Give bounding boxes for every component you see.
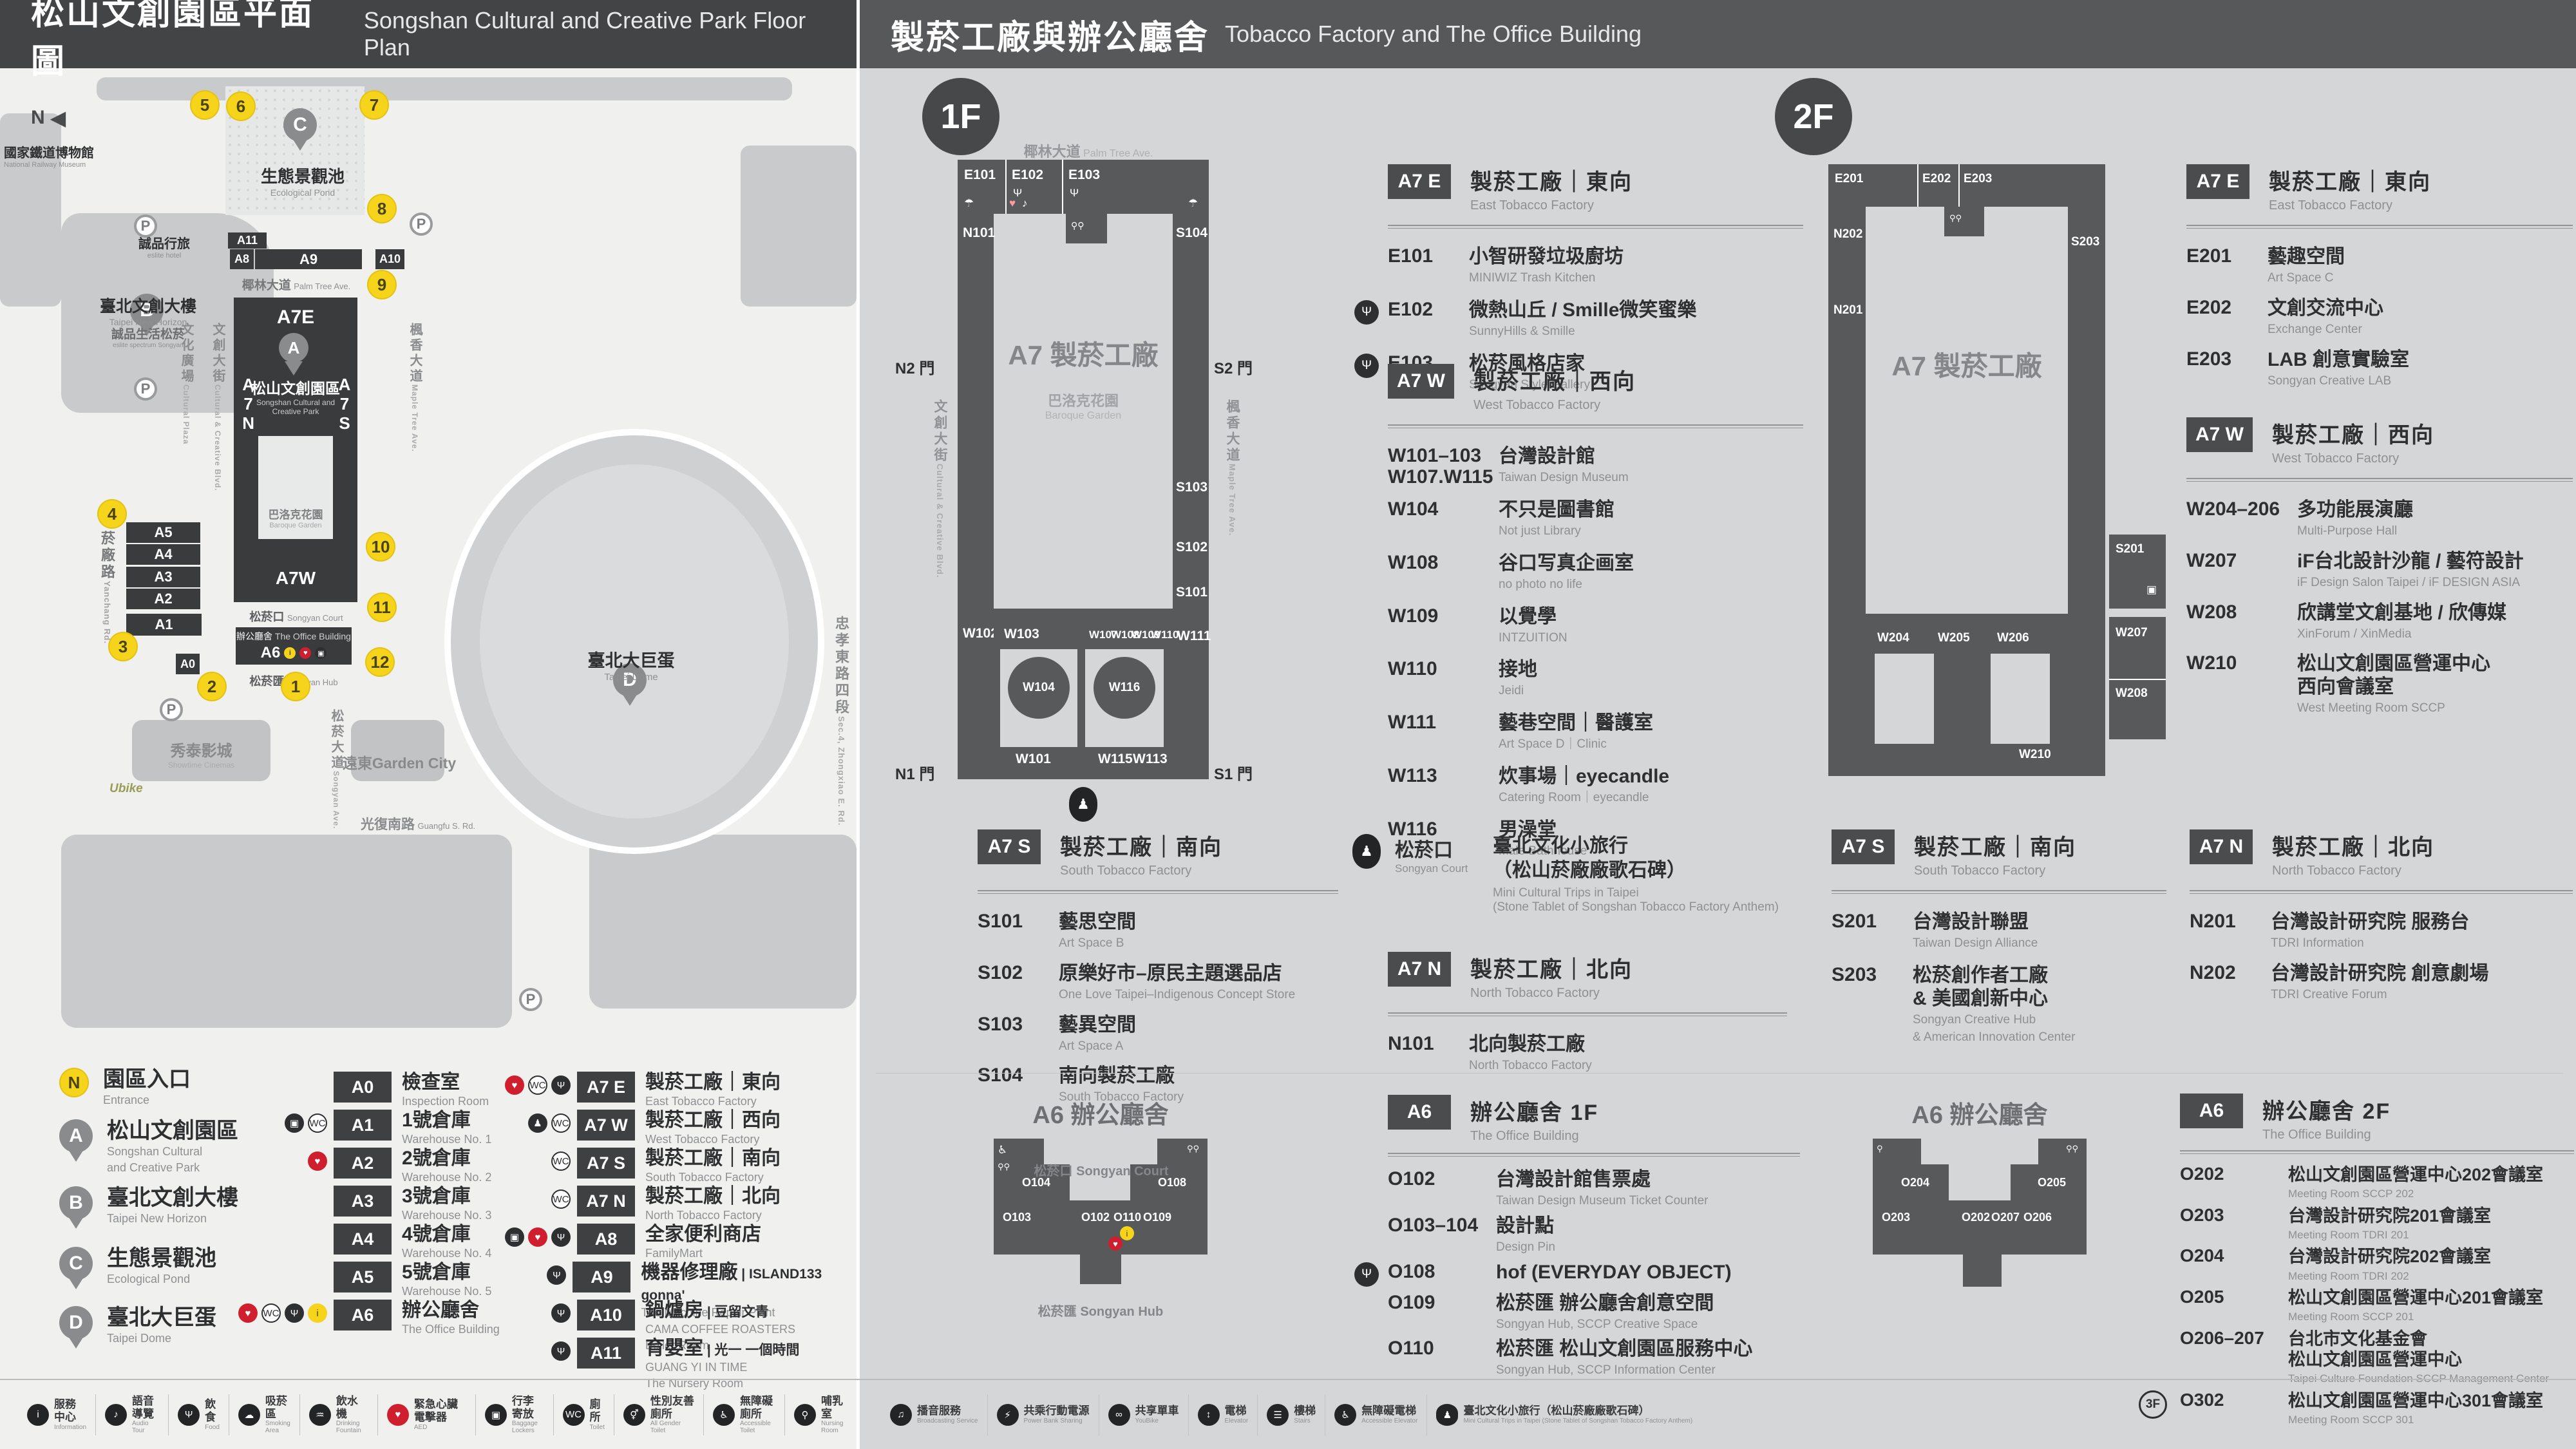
restaurant-icon: Ψ <box>551 1227 571 1247</box>
room-e201: E201 <box>1835 172 1863 186</box>
section-badge: A6 <box>2180 1094 2243 1128</box>
museum-label: 國家鐵道博物館 National Railway Museum <box>4 142 94 169</box>
room-s203: S203 <box>2071 235 2099 249</box>
entrance-marker-9: 9 <box>367 270 397 299</box>
footer-item: ∞ 共享單車YouBike <box>1099 1394 1189 1435</box>
floor-2f-badge: 2F <box>1775 78 1852 155</box>
footer-item: ⚲ 哺乳室Nursing Room <box>785 1394 855 1435</box>
room-s104: S104 <box>1176 225 1207 241</box>
room-name-en: Meeting Room SCCP 202 <box>2288 1187 2574 1200</box>
a6-2f-plan: ⚲ ⚲⚲ O204 O205 O203 O202 O207 O206 <box>1873 1139 2087 1293</box>
left-header: 松山文創園區平面圖 Songshan Cultural and Creative… <box>0 0 857 68</box>
entrance-marker-8: 8 <box>367 194 397 223</box>
legend-entrance: N 園區入口Entrance <box>59 1068 191 1108</box>
restaurant-icon: Ψ <box>1070 187 1079 200</box>
room-name-zh: 設計點 <box>1496 1215 1800 1238</box>
information-icon: i <box>1120 1226 1134 1240</box>
room-row: S101 藝思空間Art Space B <box>978 911 1338 951</box>
restroom-icon: ⚲⚲ <box>1071 220 1084 231</box>
f2-a7s-section: A7 S 製菸工廠｜南向South Tobacco Factory S201 台… <box>1832 829 2166 1056</box>
right-title-zh: 製菸工廠與辦公廳舍 <box>891 10 1209 59</box>
room-code: W110 <box>1388 658 1499 701</box>
a6-band-divider <box>876 1073 2563 1074</box>
footer-icon: WC <box>563 1404 585 1426</box>
room-w103: W103 <box>1004 627 1039 642</box>
restroom-icon: ⚲ <box>1877 1144 1883 1154</box>
room-w204: W204 <box>1877 631 1909 645</box>
locker-icon: ▣ <box>315 647 327 659</box>
room-name-zh: 炊事場｜eyecandle <box>1499 765 1803 788</box>
room-name-zh: 台灣設計聯盟 <box>1913 911 2166 934</box>
restroom-icon: WC <box>528 1075 547 1095</box>
room-row: S103 藝異空間Art Space A <box>978 1014 1338 1054</box>
room-name-en: Taiwan Design Alliance <box>1913 936 2166 951</box>
room-row: O102 台灣設計館售票處Taiwan Design Museum Ticket… <box>1388 1168 1800 1209</box>
footer-icon: ☰ <box>1267 1404 1289 1426</box>
road-guangfu: 光復南路 Guangfu S. Rd. <box>361 814 475 833</box>
legend-badge: A5 <box>334 1262 392 1293</box>
sccp-pin: A <box>279 333 308 363</box>
map-legend: N 園區入口Entrance A 松山文創園區Songshan Cultural… <box>0 1060 857 1378</box>
room-name-en: Art Space A <box>1059 1039 1338 1054</box>
section-badge: A7 W <box>1388 364 1454 399</box>
parking-icon: P <box>134 377 157 401</box>
room-name-en: TDRI Information <box>2271 936 2573 951</box>
room-name-zh: 藝思空間 <box>1059 911 1338 934</box>
f1-court-note: ♟ 松菸口 Songyan Court 臺北文化小旅行 （松山菸廠廠歌石碑） M… <box>1352 834 1803 914</box>
garden-city-label: 遠東Garden City <box>341 751 457 773</box>
footer-item: i 服務中心Information <box>18 1394 96 1435</box>
pond-label: 生態景觀池 Ecological Pond <box>248 164 357 198</box>
dome-oval <box>444 429 824 854</box>
room-name-en: Songyan Creative Hub <box>1913 1012 2166 1028</box>
room-row: E202 文創交流中心Exchange Center <box>2186 297 2573 337</box>
audio-guide-icon: ♪ <box>1022 197 1028 210</box>
entrance-marker-12: 12 <box>365 647 395 677</box>
room-o103: O103 <box>1003 1211 1031 1224</box>
information-icon: i <box>284 647 296 659</box>
room-row: N201 台灣設計研究院 服務台TDRI Information <box>2190 911 2573 951</box>
room-code: O202 <box>2180 1164 2288 1201</box>
restroom-icon: WC <box>551 1151 571 1171</box>
locker-icon: ▣ <box>505 1227 524 1247</box>
compass-arrow-icon: ◀ <box>50 106 66 130</box>
sccp-label: 松山文創園區 Songshan Cultural and Creative Pa… <box>234 376 357 416</box>
room-name-en: Meeting Room SCCP 201 <box>2288 1310 2574 1323</box>
room-o204: O204 <box>1901 1176 1929 1189</box>
room-row: N101 北向製菸工廠North Tobacco Factory <box>1388 1033 1787 1074</box>
legend-badge: A0 <box>334 1072 392 1103</box>
aed-icon: ♥ <box>1108 1236 1122 1251</box>
room-code: S201 <box>1832 911 1913 953</box>
room-w208: W208 <box>2116 687 2148 701</box>
entrance-marker-6: 6 <box>226 91 256 121</box>
room-row: W104 不只是圖書館Not just Library <box>1388 498 1803 541</box>
room-row: O109 松菸匯 辦公廳舍創意空間Songyan Hub, SCCP Creat… <box>1388 1292 1800 1332</box>
entrance-marker-5: 5 <box>190 90 220 120</box>
room-w207: W207 <box>2116 626 2148 640</box>
footer-icon: ⚲ <box>794 1404 816 1426</box>
restroom-icon: WC <box>551 1189 571 1209</box>
room-w102: W102 <box>963 626 998 641</box>
room-row: O203 台灣設計研究院201會議室Meeting Room TDRI 201 <box>2180 1206 2574 1242</box>
block-a9: A9 <box>255 249 362 269</box>
aed-icon: ♥ <box>308 1151 327 1171</box>
room-name-zh: 松菸創作者工廠 <box>1913 964 2166 987</box>
legend-badge: A7 N <box>577 1186 635 1217</box>
restaurant-icon: Ψ <box>551 1075 571 1095</box>
room-name-zh: iF台北設計沙龍 / 藝符設計 <box>2297 550 2573 573</box>
footer-legend-right: ♫ 播音服務Broadcasting Service ⚡ 共乘行動電源Power… <box>881 1380 2568 1449</box>
room-row: O110 松菸匯 松山文創園區服務中心Songyan Hub, SCCP Inf… <box>1388 1338 1800 1378</box>
room-code: O108 <box>1388 1261 1496 1286</box>
room-w111: W111 <box>1177 629 1211 644</box>
gate-n2: N2 門 <box>895 355 934 378</box>
footer-icon: ♟ <box>1436 1404 1458 1426</box>
legend-badge: A7 E <box>577 1072 635 1103</box>
legend-row: A5 5號倉庫 Warehouse No. 5 <box>252 1262 491 1299</box>
block-a0: A0 <box>176 654 200 674</box>
legend-badge: A4 <box>334 1224 392 1255</box>
room-o109: O109 <box>1143 1211 1171 1224</box>
room-code: O205 <box>2180 1287 2288 1324</box>
room-code: W109 <box>1388 605 1499 648</box>
legend-row: ▣♥Ψ A8 全家便利商店 FamilyMart <box>496 1224 761 1261</box>
legend-badge: A1 <box>334 1110 392 1141</box>
stone-tablet-icon: ♟ <box>1069 787 1097 822</box>
pond-pin: C <box>283 108 317 142</box>
a6-1f-title: A6 辦公廳舍 <box>994 1095 1207 1130</box>
room-code: N202 <box>2190 962 2271 1003</box>
room-row: W109 以覺學INTZUITION <box>1388 605 1803 648</box>
legend-badge: A10 <box>577 1300 635 1331</box>
legend-badge: A3 <box>334 1186 392 1217</box>
entrance-marker-10: 10 <box>366 532 395 562</box>
f1-a7w-section: A7 W 製菸工廠｜西向West Tobacco Factory W101–10… <box>1388 364 1803 871</box>
room-code: S102 <box>978 962 1059 1003</box>
legend-row: ▣WC A1 1號倉庫 Warehouse No. 1 <box>252 1110 491 1147</box>
f1-road-right: 楓香大道Maple Tree Ave. <box>1222 399 1242 536</box>
room-row: W108 谷口写真企画室no photo no life <box>1388 552 1803 594</box>
room-name-en: Taiwan Design Museum Ticket Counter <box>1496 1193 1800 1209</box>
legend-point-d: D 臺北大巨蛋Taipei Dome <box>59 1306 216 1346</box>
gate-s2: S2 門 <box>1214 355 1253 378</box>
a6-hub-label: 松菸匯 Songyan Hub <box>994 1301 1207 1320</box>
room-name-en: Catering Room｜eyecandle <box>1499 790 1803 806</box>
room-s102: S102 <box>1176 540 1207 555</box>
road-maple: 楓香大道Maple Tree Ave. <box>406 323 424 452</box>
legend-badge: A9 <box>573 1262 630 1293</box>
room-o206: O206 <box>2023 1211 2052 1224</box>
entrance-marker-1: 1 <box>281 672 310 701</box>
room-w116: W116 <box>1094 657 1155 719</box>
room-code: O206–207 <box>2180 1329 2288 1386</box>
room-name-zh: 藝趣空間 <box>2268 245 2573 269</box>
room-name-zh: 原樂好市–原民主題選品店 <box>1059 962 1338 985</box>
room-n101: N101 <box>963 225 995 241</box>
room-code: W111 <box>1388 712 1499 754</box>
room-code: W101–103W107.W115 <box>1388 445 1499 488</box>
section-badge: A7 S <box>1832 829 1895 864</box>
room-e101: E101 <box>964 167 996 183</box>
room-name-en: Taiwan Design Museum <box>1499 470 1803 486</box>
baroque-garden: 巴洛克花園 Baroque Garden <box>258 436 333 539</box>
footer-item: ♒ 飲水機Drinking Fountain <box>300 1394 378 1435</box>
block-a4: A4 <box>126 544 200 565</box>
footer-item: ☁ 吸菸區Smoking Area <box>229 1394 300 1435</box>
information-icon: i <box>308 1303 327 1323</box>
f1-road-left: 文創大街Cultural & Creative Blvd. <box>930 399 949 578</box>
room-name-zh: 欣講堂文創基地 / 欣傳媒 <box>2297 601 2573 625</box>
f2-a7n-section: A7 N 製菸工廠｜北向North Tobacco Factory N201 台… <box>2190 829 2573 1014</box>
section-badge: A7 S <box>978 829 1041 864</box>
room-name-en: Songyan Hub, SCCP Creative Space <box>1496 1317 1800 1332</box>
room-row: O206–207 台北市文化基金會松山文創園區營運中心Taipei Cultur… <box>2180 1329 2574 1386</box>
road-ccblvd: 文創大街Cultural & Creative Blvd. <box>209 323 227 491</box>
room-code: E101 <box>1388 245 1469 288</box>
room-code: W207 <box>2186 550 2297 591</box>
room-code: O204 <box>2180 1246 2288 1283</box>
legend-badge: A7 S <box>577 1148 635 1179</box>
room-name-zh: 松山文創園區營運中心202會議室 <box>2288 1164 2574 1185</box>
legend-point-c: C 生態景觀池Ecological Pond <box>59 1247 216 1287</box>
room-name-zh: 松山文創園區營運中心201會議室 <box>2288 1287 2574 1308</box>
room-code: S103 <box>978 1014 1059 1054</box>
a6-1f-plan: ♿ ⚲⚲ ⚲⚲ O104 O108 O103 O102 O110 O109 i … <box>994 1139 1207 1293</box>
room-row: N202 台灣設計研究院 創意劇場TDRI Creative Forum <box>2190 962 2573 1003</box>
footer-icon: i <box>27 1404 49 1426</box>
footer-item: ♿ 無障礙廁所Accessible Toilet <box>704 1394 785 1435</box>
f1-plan: E101 E102 E103 Ψ Ψ ☂ ♥ ♪ ☂ ⚲⚲ N101 W102 … <box>958 160 1209 779</box>
room-row: O202 松山文創園區營運中心202會議室Meeting Room SCCP 2… <box>2180 1164 2574 1201</box>
restaurant-icon: Ψ <box>1354 354 1379 378</box>
room-o207: O207 <box>1991 1211 2020 1224</box>
room-name-en: Art Space D｜Clinic <box>1499 737 1803 752</box>
restaurant-icon: Ψ <box>547 1265 566 1285</box>
stone-tablet-icon: ♟ <box>528 1113 547 1133</box>
block-a5: A5 <box>126 522 200 543</box>
restaurant-icon: Ψ <box>1354 300 1379 325</box>
elevator-icon: ▣ <box>2146 583 2157 596</box>
room-e202: E202 <box>1922 172 1951 186</box>
restroom-icon: ⚲⚲ <box>1187 1144 1199 1154</box>
footer-item: Ψ 飲食Food <box>169 1394 229 1435</box>
room-code: E202 <box>2186 297 2268 337</box>
gate-n1: N1 門 <box>895 761 934 784</box>
block-a10: A10 <box>375 249 404 269</box>
legend-row: WC A7 S 製菸工廠｜南向 South Tobacco Factory <box>496 1148 781 1185</box>
room-s103: S103 <box>1176 480 1207 495</box>
room-w110: W110 <box>1151 629 1179 641</box>
aed-icon: ♥ <box>505 1075 524 1095</box>
legend-row: ♟WC A7 W 製菸工廠｜西向 West Tobacco Factory <box>496 1110 781 1147</box>
room-name-en: Songyan Creative LAB <box>2268 374 2573 389</box>
room-name-zh: 台灣設計館售票處 <box>1496 1168 1800 1191</box>
f2-plan: E201 E202 E203 ⚲⚲ N202 N201 S203 A7 製菸工廠… <box>1828 164 2105 776</box>
parking-icon: P <box>134 214 157 238</box>
gate-s1: S1 門 <box>1214 761 1253 784</box>
room-code: W204–206 <box>2186 498 2297 539</box>
room-name-en: SunnyHills & Smille <box>1469 324 1803 339</box>
footer-icon: ♿ <box>1334 1404 1356 1426</box>
city-block-se <box>589 835 857 1009</box>
room-e102: E102 <box>1012 167 1043 183</box>
room-row: Ψ O108 hof (EVERYDAY OBJECT) <box>1388 1261 1800 1286</box>
footer-icon: ▣ <box>485 1404 507 1426</box>
a6-court-watermark: 松菸口 Songyan Court <box>1009 1160 1193 1179</box>
room-code: N201 <box>2190 911 2271 951</box>
block-a11: A11 <box>228 232 267 249</box>
room-row: Ψ E102 微熱山丘 / Smille微笑蜜樂SunnyHills & Smi… <box>1388 299 1803 341</box>
room-row: W204–206 多功能展演廳Multi-Purpose Hall <box>2186 498 2573 539</box>
room-row: O103–104 設計點Design Pin <box>1388 1215 1800 1255</box>
room-o110: O110 <box>1113 1211 1141 1224</box>
room-code: W104 <box>1388 498 1499 541</box>
block-a3: A3 <box>126 567 200 587</box>
stone-tablet-icon: ♟ <box>1352 834 1381 869</box>
legend-row: A4 4號倉庫 Warehouse No. 4 <box>252 1224 491 1261</box>
legend-badge: A6 <box>334 1300 392 1331</box>
f1-palm-ave: 椰林大道 Palm Tree Ave. <box>1005 140 1172 161</box>
f2-center-label: A7 製菸工廠 <box>1866 345 2068 384</box>
umbrella-icon: ☂ <box>1188 197 1198 210</box>
legend-badge: A7 W <box>577 1110 635 1141</box>
right-header: 製菸工廠與辦公廳舍 Tobacco Factory and The Office… <box>860 0 2576 68</box>
room-n202: N202 <box>1833 227 1862 241</box>
room-name-zh: 藝異空間 <box>1059 1014 1338 1037</box>
room-row: E203 LAB 創意實驗室Songyan Creative LAB <box>2186 348 2573 389</box>
legend-row: ♥ A2 2號倉庫 Warehouse No. 2 <box>252 1148 491 1185</box>
cinema-label: 秀泰影城 Showtime Cinemas <box>132 738 270 770</box>
f2-s201-wing: S201 ▣ <box>2109 535 2166 609</box>
room-o203: O203 <box>1882 1211 1910 1224</box>
room-o102: O102 <box>1081 1211 1110 1224</box>
room-code: O109 <box>1388 1292 1496 1332</box>
f1-center-label: A7 製菸工廠 巴洛克花園 Baroque Garden <box>994 334 1173 422</box>
footer-icon: ♿ <box>713 1404 735 1426</box>
footer-item: ♫ 播音服務Broadcasting Service <box>881 1394 988 1435</box>
room-row: W101–103W107.W115 台灣設計館Taiwan Design Mus… <box>1388 445 1803 488</box>
parking-icon: P <box>519 988 542 1011</box>
aed-icon: ♥ <box>528 1227 547 1247</box>
room-row: O205 松山文創園區營運中心201會議室Meeting Room SCCP 2… <box>2180 1287 2574 1324</box>
room-name-zh: 南向製菸工廠 <box>1059 1065 1338 1088</box>
room-name-zh: 台灣設計研究院202會議室 <box>2288 1246 2574 1267</box>
footer-icon: ♒ <box>309 1404 331 1426</box>
aed-icon: ♥ <box>1009 197 1016 210</box>
f2-a7w-section: A7 W 製菸工廠｜西向West Tobacco Factory W204–20… <box>2186 417 2573 727</box>
ubike-label: Ubike <box>109 782 143 796</box>
room-name-zh: 台灣設計研究院 服務台 <box>2271 911 2573 934</box>
room-row: W210 松山文創園區營運中心西向會議室West Meeting Room SC… <box>2186 652 2573 716</box>
footer-item: ♿ 無障礙電梯Accessible Elevator <box>1325 1394 1427 1435</box>
room-name-zh: LAB 創意實驗室 <box>2268 348 2573 372</box>
room-s201: S201 <box>2116 542 2144 556</box>
block-a2: A2 <box>126 589 200 609</box>
room-code: E102 <box>1388 299 1469 341</box>
room-code: E203 <box>2186 348 2268 389</box>
a6-1f-section: A6 辦公廳舍 1FThe Office Building O102 台灣設計館… <box>1388 1095 1800 1384</box>
room-code: W113 <box>1388 765 1499 808</box>
restroom-icon: WC <box>308 1113 327 1133</box>
compass: N ◀ <box>31 106 66 130</box>
room-name-en: Not just Library <box>1499 524 1803 539</box>
eslite-hotel-label: 誠品行旅 eslite hotel <box>126 233 203 260</box>
legend-row: ♥WCΨi A6 辦公廳舍 The Office Building <box>252 1300 500 1337</box>
road-songyan-ave: 松菸大道Songyan Ave. <box>327 709 346 829</box>
room-name-zh: 小智研發垃圾廚坊 <box>1469 245 1803 269</box>
room-name-zh: 台灣設計研究院 創意劇場 <box>2271 962 2573 985</box>
footer-icon: ⚡ <box>997 1404 1019 1426</box>
footer-icon: Ψ <box>178 1404 200 1426</box>
room-name-en: iF Design Salon Taipei / iF DESIGN ASIA <box>2297 575 2573 591</box>
footer-icon: ∞ <box>1108 1404 1130 1426</box>
room-code: N101 <box>1388 1033 1469 1074</box>
room-row: W113 炊事場｜eyecandleCatering Room｜eyecandl… <box>1388 765 1803 808</box>
room-code: S203 <box>1832 964 1913 1045</box>
room-name-en: Songyan Hub, SCCP Information Center <box>1496 1363 1800 1378</box>
legend-row: A0 檢查室 Inspection Room <box>252 1072 489 1109</box>
legend-badge: A2 <box>334 1148 392 1179</box>
room-w101: W101 <box>1016 752 1051 767</box>
footer-item: ♪ 語音導覽Audio Tour <box>96 1394 169 1435</box>
room-name-en: TDRI Creative Forum <box>2271 987 2573 1003</box>
room-name-en: North Tobacco Factory <box>1469 1058 1787 1074</box>
room-code: E201 <box>2186 245 2268 286</box>
accessible-icon: ♿ <box>998 1144 1007 1157</box>
legend-badge: A11 <box>577 1338 635 1368</box>
room-code: S101 <box>978 911 1059 951</box>
room-row: E101 小智研發垃圾廚坊MINIWIZ Trash Kitchen <box>1388 245 1803 288</box>
entrance-marker-11: 11 <box>367 592 397 622</box>
block-a7e: A7E <box>234 307 357 328</box>
footer-icon: ☁ <box>238 1404 260 1426</box>
section-badge: A6 <box>1388 1095 1451 1130</box>
block-a7w: A7W <box>234 568 357 589</box>
footer-icon: ⚥ <box>623 1404 645 1426</box>
room-name-zh: 台灣設計研究院201會議室 <box>2288 1206 2574 1226</box>
room-n201: N201 <box>1833 303 1862 317</box>
parking-icon: P <box>160 698 183 721</box>
room-name-en: Art Space C <box>2268 270 2573 286</box>
road-zhongxiao: 忠孝東路四段Sec.4, Zhongxiao E. Rd. <box>831 616 851 826</box>
section-badge: A7 E <box>2186 164 2249 199</box>
room-row: S203 松菸創作者工廠& 美國創新中心Songyan Creative Hub… <box>1832 964 2166 1045</box>
room-row: E201 藝趣空間Art Space C <box>2186 245 2573 286</box>
footer-item: ♥ 緊急心臟電擊器AED <box>378 1394 476 1435</box>
room-name-zh: 以覺學 <box>1499 605 1803 629</box>
footer-icon: ♪ <box>105 1404 127 1426</box>
room-row: S102 原樂好市–原民主題選品店One Love Taipei–Indigen… <box>978 962 1338 1003</box>
section-badge: A7 W <box>2186 417 2253 452</box>
restroom-icon: ⚲⚲ <box>1949 213 1962 223</box>
room-name-en: One Love Taipei–Indigenous Concept Store <box>1059 987 1338 1003</box>
room-name-zh: hof (EVERYDAY OBJECT) <box>1496 1261 1800 1284</box>
parking-icon: P <box>410 213 433 236</box>
room-code: O110 <box>1388 1338 1496 1378</box>
footer-item: ↕ 電梯Elevator <box>1189 1394 1258 1435</box>
room-name-zh: 藝巷空間｜醫護室 <box>1499 712 1803 735</box>
room-name-en: XinForum / XinMedia <box>2297 627 2573 642</box>
room-name-en: MINIWIZ Trash Kitchen <box>1469 270 1803 286</box>
room-o205: O205 <box>2038 1176 2066 1189</box>
room-code: O102 <box>1388 1168 1496 1209</box>
room-w205: W205 <box>1938 631 1970 645</box>
restroom-icon: WC <box>261 1303 281 1323</box>
room-w210: W210 <box>2019 748 2051 762</box>
room-name-zh: 台灣設計館 <box>1499 445 1803 468</box>
room-s101: S101 <box>1176 585 1207 600</box>
